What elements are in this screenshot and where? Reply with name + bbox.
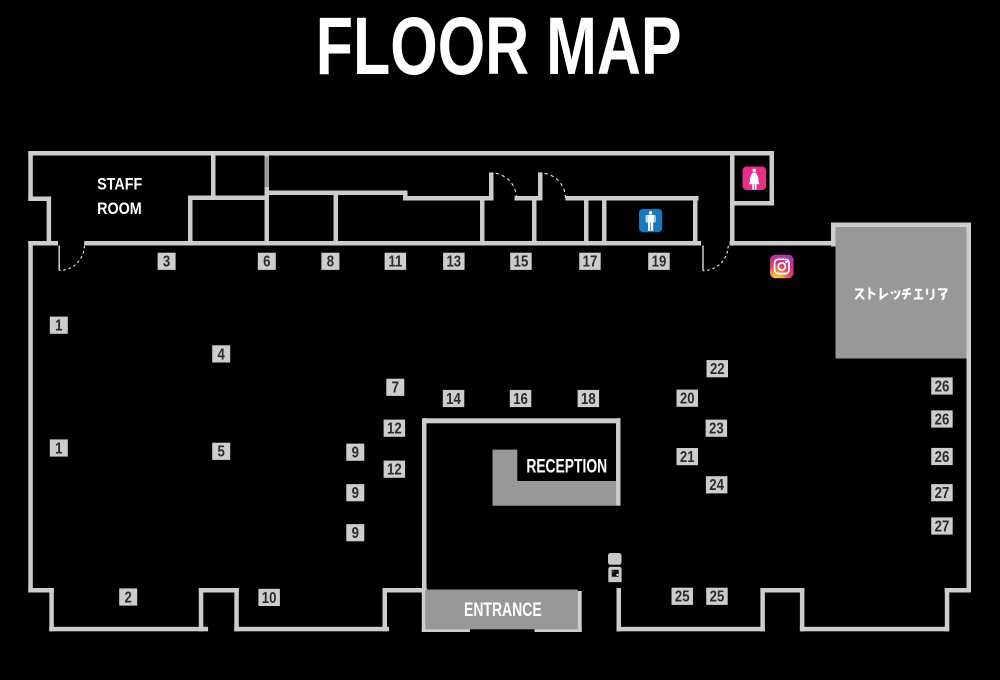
svg-text:12: 12 [387,462,402,479]
svg-text:26: 26 [935,378,950,395]
svg-text:26: 26 [935,449,950,466]
svg-text:RECEPTION: RECEPTION [526,455,607,477]
svg-text:12: 12 [387,421,402,438]
svg-text:3: 3 [163,254,170,271]
svg-text:17: 17 [583,254,598,271]
svg-text:24: 24 [709,477,724,494]
svg-text:10: 10 [262,590,277,607]
svg-text:26: 26 [935,411,950,428]
svg-text:27: 27 [935,485,950,502]
svg-text:27: 27 [935,518,950,535]
svg-text:14: 14 [446,391,461,408]
svg-text:18: 18 [581,391,596,408]
svg-text:5: 5 [218,444,225,461]
svg-text:1: 1 [55,440,62,457]
svg-text:9: 9 [352,525,359,542]
svg-text:9: 9 [352,445,359,462]
svg-text:15: 15 [514,254,529,271]
svg-text:22: 22 [710,361,725,378]
svg-text:4: 4 [218,346,225,363]
svg-text:13: 13 [446,254,461,271]
svg-text:6: 6 [263,254,270,271]
svg-text:8: 8 [327,254,334,271]
svg-text:9: 9 [352,485,359,502]
svg-text:ENTRANCE: ENTRANCE [464,599,542,621]
svg-text:STAFF: STAFF [97,176,142,194]
svg-text:ROOM: ROOM [97,200,142,218]
svg-text:25: 25 [675,589,690,606]
svg-text:2: 2 [125,589,132,606]
svg-text:21: 21 [680,449,695,466]
svg-text:11: 11 [388,254,402,271]
svg-text:FLOOR MAP: FLOOR MAP [316,1,682,92]
svg-text:19: 19 [652,254,667,271]
svg-text:20: 20 [680,391,695,408]
svg-text:23: 23 [709,421,724,438]
svg-text:25: 25 [710,589,725,606]
svg-text:7: 7 [392,380,399,397]
svg-text:1: 1 [55,318,62,335]
svg-text:16: 16 [513,391,528,408]
